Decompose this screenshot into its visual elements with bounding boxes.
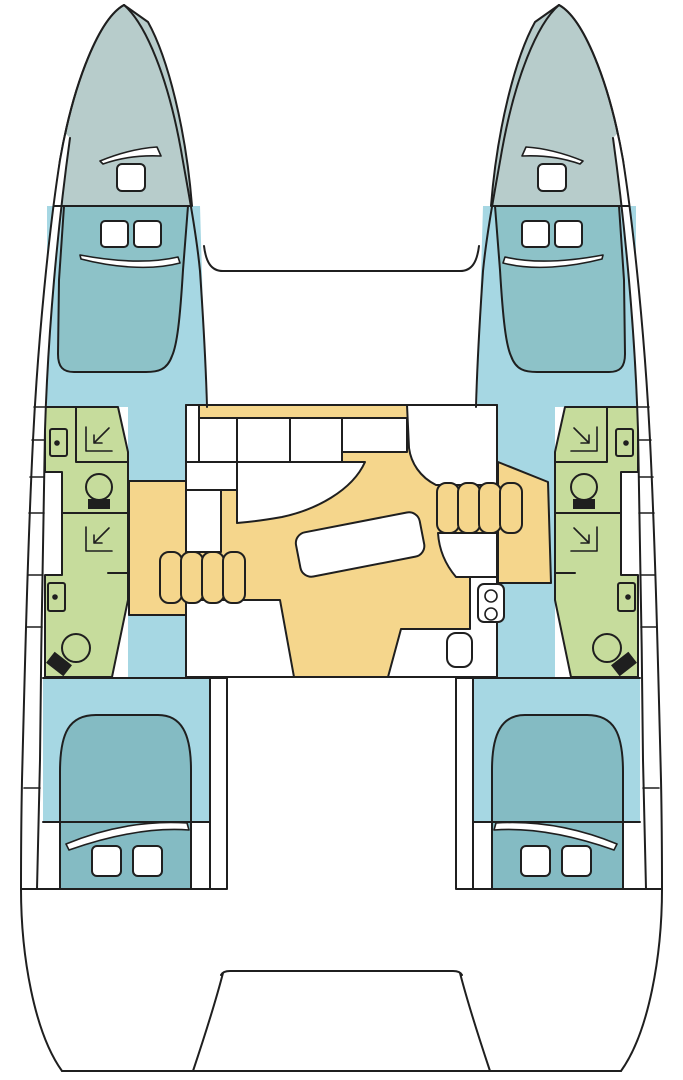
deck-plan-svg	[0, 0, 683, 1080]
bed-hatch-icon	[133, 846, 162, 876]
bow-hatch-icon	[538, 164, 566, 191]
galley-counter	[342, 418, 407, 452]
galley-counter	[290, 418, 342, 462]
catamaran-floor-plan	[0, 0, 683, 1080]
bow-hatch-icon	[117, 164, 145, 191]
transom-platform-top	[221, 971, 462, 975]
galley-cell	[186, 405, 199, 462]
step	[437, 483, 459, 533]
plan-root	[21, 5, 662, 1071]
cabin-hatch-icon	[555, 221, 582, 247]
step	[202, 552, 224, 603]
starboard-settee	[407, 405, 497, 485]
galley-counter	[237, 418, 290, 462]
step	[500, 483, 522, 533]
starboard-aft-berth	[492, 715, 623, 889]
bed-hatch-icon	[521, 846, 550, 876]
galley-cell	[186, 490, 221, 552]
bed-hatch-icon	[562, 846, 591, 876]
aft-counter-port	[186, 600, 294, 677]
companionway-steps-port	[160, 552, 245, 603]
cabin-hatch-icon	[134, 221, 161, 247]
foredeck-beam-line	[204, 246, 479, 271]
step	[160, 552, 182, 603]
saloon	[160, 405, 522, 677]
bed-hatch-icon	[92, 846, 121, 876]
step	[458, 483, 480, 533]
galley-box	[447, 633, 472, 667]
galley-cell	[186, 462, 237, 490]
starboard-stern-inner	[460, 973, 490, 1071]
sink-basin	[485, 590, 497, 602]
port-aft-berth	[60, 715, 191, 889]
companionway-steps-starboard	[437, 483, 522, 533]
step	[479, 483, 501, 533]
galley-cell	[199, 418, 237, 462]
cabin-hatch-icon	[101, 221, 128, 247]
port-stern-inner	[193, 973, 223, 1071]
step	[181, 552, 203, 603]
step	[223, 552, 245, 603]
cabin-hatch-icon	[522, 221, 549, 247]
sink-basin	[485, 608, 497, 620]
